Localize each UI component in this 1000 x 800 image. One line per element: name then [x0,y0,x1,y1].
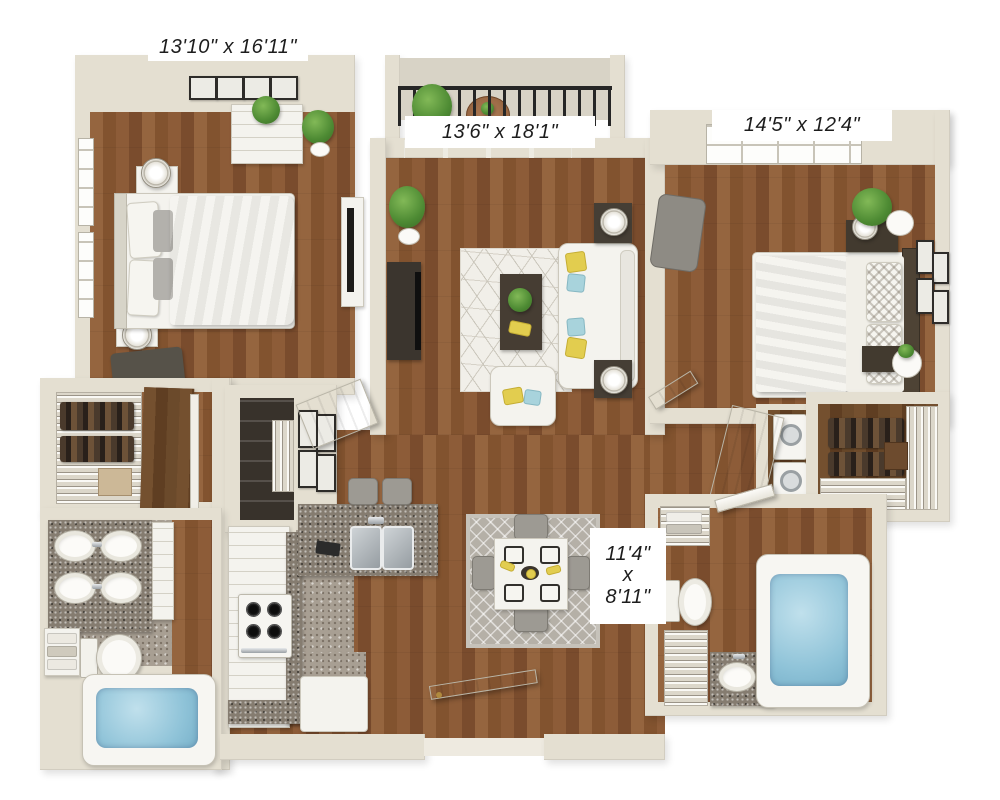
kitchen-sink-basin [382,526,414,570]
bedroom-2-dimension-label: 14'5" x 12'4" [712,110,892,141]
planter-pot [886,210,914,236]
vanity-sink [54,572,96,604]
bathtub-water [96,688,198,748]
bedroom-1-window-2 [78,232,94,318]
towel [666,524,702,534]
living-room-dimension-label: 13'6" x 18'1" [405,116,595,148]
closet-barn-door [140,387,194,517]
sofa-pillow-yellow [565,337,588,360]
kitchen-counter-bottom [228,700,306,724]
armchair-pillow-yellow [502,386,524,405]
headboard [114,193,127,329]
wall-art-frame [298,450,318,488]
dining-chair [566,556,590,590]
centerpiece-fruit [526,569,536,579]
vanity-cabinet [152,522,174,620]
bedroom-1-window-1 [78,138,94,226]
stove-burner [246,624,261,639]
storage-box [884,442,908,470]
living-room-left-wall [370,138,386,435]
refrigerator [300,676,368,732]
towel [47,646,77,657]
plant-pot [398,228,420,245]
armchair-gray [649,193,707,273]
bathtub-water [770,574,848,686]
closet-wire-shelf [906,406,938,510]
dining-chair [514,514,548,540]
vanity-sink [54,530,96,562]
tv-screen [415,272,421,350]
faucet [92,542,102,547]
coffee-table-plant [508,288,532,312]
plant-small [898,344,914,358]
alcove-wire-shelf [272,420,294,492]
sofa-pillow-blue [566,273,586,293]
entry-threshold [424,738,546,756]
place-setting [540,584,560,602]
faucet [92,584,102,589]
table-lamp [600,208,628,236]
stove-burner [267,624,282,639]
dining-dimension-line-1: 11'4" [605,544,650,566]
wall-art-frame [189,76,217,100]
kitchen-sink-basin [350,526,382,570]
comforter [756,256,848,392]
plant [252,96,280,124]
vanity-sink [718,662,756,692]
hanging-clothes [60,436,134,462]
vanity-sink [100,530,142,562]
entry-door-knob [436,692,442,698]
plant-pot [310,142,330,157]
balcony-wall-right [610,55,625,145]
hanging-clothes [60,402,134,430]
dining-dimension-line-2: x [623,565,634,587]
wall-art-frame [216,76,244,100]
living-plant [389,186,425,228]
towel [666,512,702,522]
bottom-wall-left [220,734,425,760]
patterned-pillow [866,262,902,322]
coffee-table [500,274,542,350]
sofa-pillow-blue [566,317,586,337]
rolling-storage-cart [664,630,708,706]
bar-stool [348,478,378,505]
floor-plan-canvas: 13'10" x 16'11" 13'6" x 18'1" 14'5" x 12… [0,0,1000,800]
dining-chair [472,556,496,590]
toilet-bowl [678,578,712,626]
vanity-sink [100,572,142,604]
storage-basket [98,468,132,496]
wall-art-frame [932,290,949,324]
comforter [170,196,294,325]
towel [47,633,77,644]
washer-door [780,424,802,446]
wall-art-frame [316,454,336,492]
place-setting [540,546,560,564]
wall-art-frame [270,76,298,100]
stove-handle [241,648,287,653]
bedroom-1-dimension-label: 13'10" x 16'11" [148,33,308,61]
bottom-wall-right [544,734,665,760]
dining-dimension-line-3: 8'11" [605,587,650,609]
kitchen-faucet [368,517,384,524]
tv-screen [347,208,354,292]
table-lamp [141,158,171,188]
dining-dimension-label: 11'4" x 8'11" [590,528,666,624]
barn-door-rail [190,394,199,514]
stove-burner [267,602,282,617]
bar-stool [382,478,412,505]
dryer-door [780,470,802,492]
wall-art-frame [932,252,949,284]
stove-burner [246,602,261,617]
corner-plant [302,110,334,144]
faucet [733,654,745,659]
armchair-pillow-blue [523,389,542,406]
place-setting [504,584,524,602]
towel [47,659,77,670]
sofa-pillow-yellow [565,251,588,274]
table-lamp [600,366,628,394]
